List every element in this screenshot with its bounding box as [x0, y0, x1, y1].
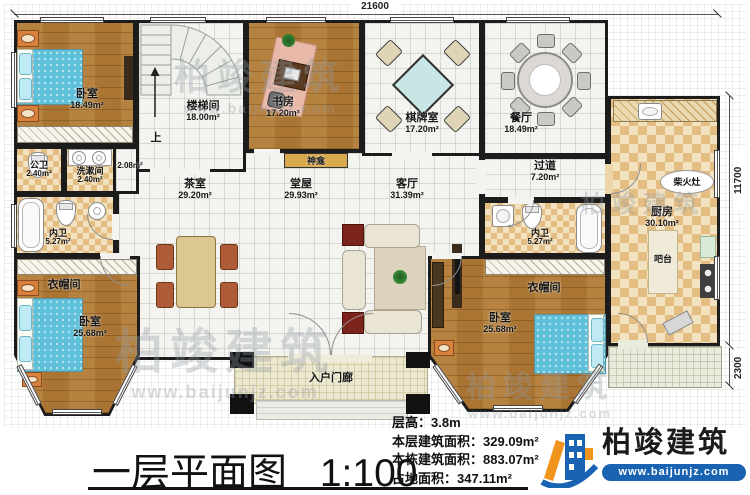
- room-area: 29.93m²: [266, 190, 336, 200]
- kitchen-sink: [638, 103, 662, 120]
- stat-value: 347.11m²: [457, 471, 512, 486]
- sofa: [364, 224, 420, 248]
- room-name: 楼梯间: [168, 100, 238, 112]
- room-label-study: 书房 17.20m²: [250, 96, 316, 118]
- stat-value: 883.07m²: [483, 452, 539, 467]
- room-label-inner-bath-right: 内卫 5.27m²: [512, 228, 568, 247]
- label-up: 上: [146, 132, 166, 144]
- window: [714, 256, 720, 300]
- room-label-game-room: 棋牌室 17.20m²: [386, 112, 458, 134]
- window: [714, 150, 720, 198]
- room-label-hall: 堂屋 29.93m²: [266, 178, 336, 200]
- room-name: 卧室: [52, 88, 122, 100]
- plan-stats: 层高：3.8m 本层建筑面积：329.09m² 本栋建筑面积：883.07m² …: [392, 414, 539, 488]
- room-name: 入户门廊: [288, 372, 374, 384]
- opening-game-hall: [392, 153, 432, 159]
- small-area-text: 2.08m²: [108, 162, 152, 171]
- stat-label: 本层建筑面积：: [392, 434, 483, 449]
- nightstand: [434, 340, 454, 356]
- opening-hall-corridor: [476, 160, 486, 194]
- window: [11, 52, 17, 108]
- room-area: 17.20m²: [386, 124, 458, 134]
- room-name: 茶室: [160, 178, 230, 190]
- logo-building-icon: [540, 428, 598, 488]
- room-name: 卧室: [466, 312, 534, 324]
- wardrobe-hatch-right: [485, 259, 605, 275]
- room-label-porch: 入户门廊: [288, 372, 374, 384]
- stat-label: 本栋建筑面积：: [392, 452, 483, 467]
- tv-cabinet: [124, 56, 133, 100]
- dining-chair: [577, 72, 591, 90]
- nightstand: [17, 30, 39, 47]
- pillow: [19, 78, 32, 100]
- dimension-line-top: [14, 14, 718, 15]
- room-label-cloak-left: 衣帽间: [34, 279, 94, 291]
- pillow: [591, 318, 604, 342]
- logo-name: 柏竣建筑: [602, 426, 730, 460]
- window: [266, 17, 326, 23]
- room-area: 30.10m²: [628, 218, 696, 228]
- porch-column: [406, 352, 430, 368]
- label-shrine: 神龛: [284, 156, 348, 166]
- bathtub: [576, 204, 602, 253]
- dining-chair: [537, 34, 555, 48]
- tea-chair: [220, 244, 238, 270]
- entrance-doorway: [288, 354, 372, 362]
- end-table: [342, 224, 364, 246]
- doorway-bath-left: [112, 214, 119, 240]
- room-label-corridor: 过道 7.20m²: [512, 160, 578, 182]
- tea-table: [176, 236, 216, 308]
- window: [506, 17, 570, 23]
- bay-window: [493, 405, 543, 411]
- room-area: 7.20m²: [512, 172, 578, 182]
- dimension-top-value: 21600: [350, 1, 400, 12]
- room-name: 餐厅: [488, 112, 554, 124]
- room-name: 书房: [250, 96, 316, 108]
- room-area: 5.27m²: [32, 238, 84, 247]
- dimension-right-upper-value: 11700: [733, 150, 746, 210]
- label-wood-stove: 柴火灶: [660, 177, 714, 187]
- dimension-line-right-lower: [729, 348, 730, 386]
- room-area: 18.49m²: [52, 100, 122, 110]
- pillow: [19, 53, 32, 75]
- patio: [608, 346, 722, 388]
- opening-stair-hall: [150, 169, 210, 175]
- room-area: 25.68m²: [466, 324, 534, 334]
- room-area: 17.20m²: [250, 108, 316, 118]
- room-name: 堂屋: [266, 178, 336, 190]
- tea-chair: [156, 282, 174, 308]
- room-name: 衣帽间: [34, 279, 94, 291]
- tea-chair: [220, 282, 238, 308]
- room-label-bedroom-tl: 卧室 18.49m²: [52, 88, 122, 110]
- room-label-public-bath: 公卫 2.40m²: [16, 160, 62, 179]
- room-label-tearoom: 茶室 29.20m²: [160, 178, 230, 200]
- room-area: 18.00m²: [168, 112, 238, 122]
- dining-chair: [501, 72, 515, 90]
- room-area: 25.68m²: [56, 328, 124, 338]
- window: [11, 204, 17, 248]
- room-name: 厨房: [628, 206, 696, 218]
- room-label-cloak-right: 衣帽间: [512, 282, 576, 294]
- floor-plan-canvas: 卧室 18.49m² 楼梯间 18.00m² 书房 17.20m² 棋牌室 17…: [0, 0, 750, 495]
- porch-column: [230, 352, 254, 368]
- room-name: 衣帽间: [512, 282, 576, 294]
- porch-column: [230, 394, 254, 414]
- dimension-right-lower-value: 2300: [733, 350, 746, 386]
- room-label-stairwell: 楼梯间 18.00m²: [168, 100, 238, 122]
- stat-label: 层高：: [392, 415, 431, 430]
- room-label-living: 客厅 31.39m²: [372, 178, 442, 200]
- potted-plant: [282, 34, 295, 47]
- sofa: [342, 250, 366, 310]
- room-label-bedroom-br: 卧室 25.68m²: [466, 312, 534, 334]
- dining-table-top: [529, 64, 561, 96]
- room-label-bedroom-bl: 卧室 25.68m²: [56, 316, 124, 338]
- up-text: 上: [146, 132, 166, 144]
- nightstand: [17, 105, 39, 122]
- room-label-dining: 餐厅 18.49m²: [488, 112, 554, 134]
- pillow: [19, 336, 32, 362]
- stat-value: 3.8m: [431, 415, 461, 430]
- tea-chair: [156, 244, 174, 270]
- room-area: 2.40m²: [16, 170, 62, 179]
- room-name: 卧室: [56, 316, 124, 328]
- room-area: 18.49m²: [488, 124, 554, 134]
- room-area: 5.27m²: [512, 238, 568, 247]
- room-label-kitchen: 厨房 30.10m²: [628, 206, 696, 228]
- pillow: [19, 305, 32, 331]
- stat-floor-height: 层高：3.8m: [392, 414, 539, 433]
- dimension-line-right-upper: [729, 96, 730, 346]
- logo-block: 柏竣建筑 www.baijunjz.com: [540, 426, 748, 492]
- stat-value: 329.09m²: [483, 434, 539, 449]
- counter-green: [700, 236, 716, 258]
- wardrobe-hatch-topleft: [17, 126, 133, 143]
- window: [40, 17, 104, 23]
- stat-label: 占地面积：: [392, 471, 457, 486]
- porch-column: [406, 394, 430, 414]
- wood-stove-text: 柴火灶: [660, 177, 714, 187]
- room-area: 29.20m²: [160, 190, 230, 200]
- room-area: 31.39m²: [372, 190, 442, 200]
- wash-basin: [72, 151, 86, 165]
- label-small-area: 2.08m²: [108, 162, 152, 171]
- porch-steps: [256, 400, 408, 420]
- wash-basin: [92, 151, 106, 165]
- stat-building-area: 本栋建筑面积：883.07m²: [392, 451, 539, 470]
- logo-site: www.baijunjz.com: [602, 464, 746, 481]
- shrine-text: 神龛: [284, 156, 348, 166]
- label-bar: 吧台: [648, 254, 678, 264]
- window: [150, 17, 206, 23]
- kitchen-counter: [613, 100, 717, 122]
- potted-plant: [393, 270, 407, 284]
- opening-study-hall: [254, 149, 280, 155]
- room-area: 2.40m²: [64, 176, 116, 185]
- room-name: 客厅: [372, 178, 442, 190]
- room-name: 过道: [512, 160, 578, 172]
- room-label-inner-bath-left: 内卫 5.27m²: [32, 228, 84, 247]
- bay-window: [52, 409, 102, 415]
- bar-text: 吧台: [648, 254, 678, 264]
- stat-land-area: 占地面积：347.11m²: [392, 470, 539, 489]
- stat-floor-area: 本层建筑面积：329.09m²: [392, 433, 539, 452]
- room-name: 棋牌室: [386, 112, 458, 124]
- window: [390, 17, 454, 23]
